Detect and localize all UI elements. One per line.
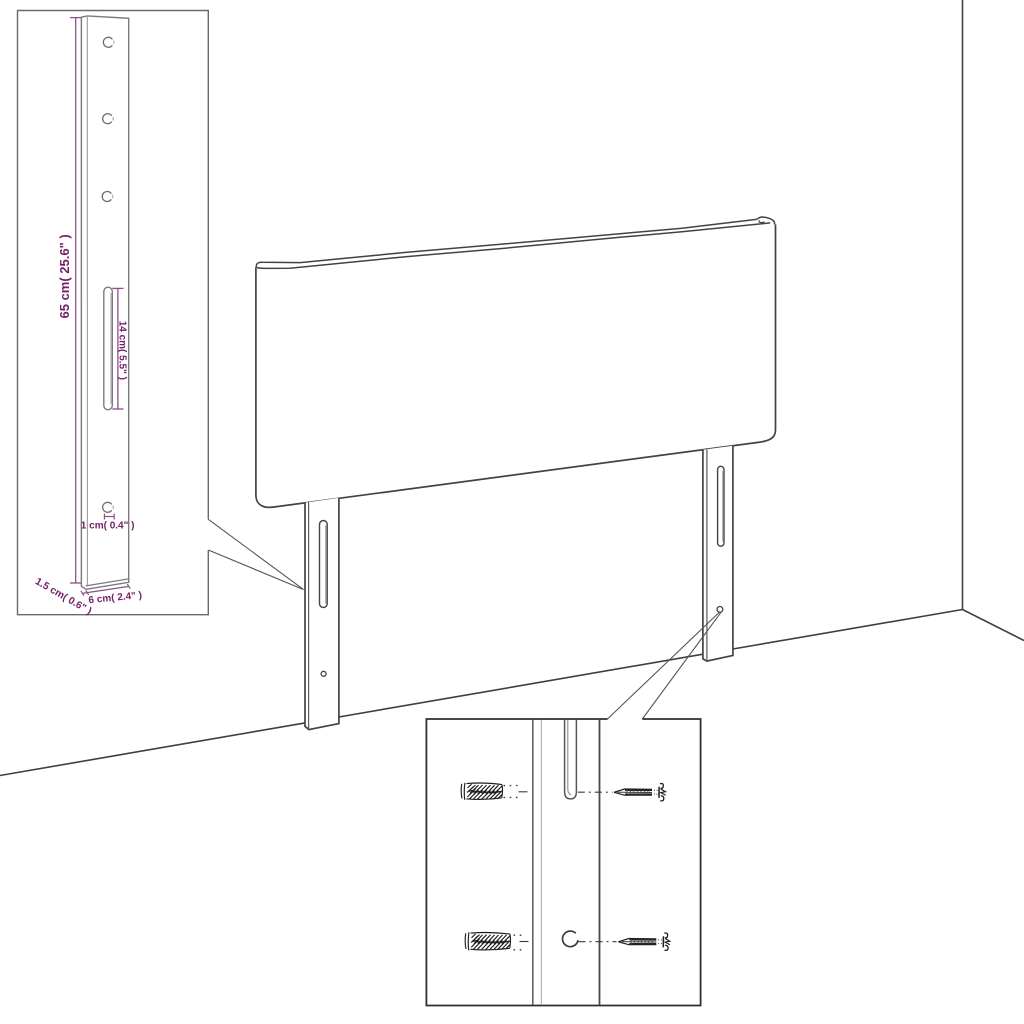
svg-text:1 cm( 0.4" ): 1 cm( 0.4" ): [81, 521, 135, 532]
svg-text:6 cm( 2.4" ): 6 cm( 2.4" ): [88, 590, 142, 606]
svg-text:65 cm( 25.6" ): 65 cm( 25.6" ): [57, 234, 72, 318]
svg-text:14 cm( 5.5" ): 14 cm( 5.5" ): [117, 321, 128, 380]
